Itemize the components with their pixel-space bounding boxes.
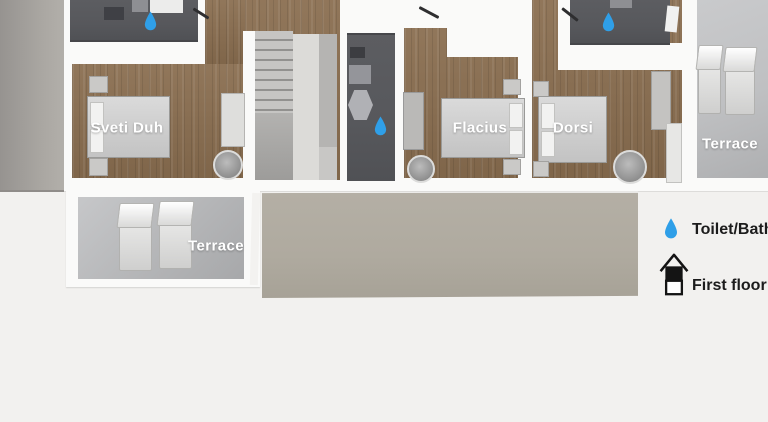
lounger-backrest <box>722 47 757 72</box>
pouf <box>407 155 435 183</box>
room-label-dorsi: Dorsi <box>553 120 593 137</box>
pouf <box>613 150 647 184</box>
stair-bottom-step <box>319 147 337 180</box>
water-drop-icon <box>143 10 158 33</box>
legend-label-toilet-bath: Toilet/Bath <box>692 221 768 239</box>
wardrobe <box>651 71 671 130</box>
pillow <box>509 103 523 128</box>
lounger-backrest <box>116 203 154 228</box>
room-label-sveti-duh: Sveti Duh <box>91 120 164 137</box>
washbasin-fixture <box>349 65 371 84</box>
sun-lounger <box>159 203 192 269</box>
room-label-terrace-lower: Terrace <box>188 238 244 255</box>
nightstand <box>503 159 521 175</box>
staircase <box>255 31 337 180</box>
bathroom-sveti-duh <box>70 0 198 42</box>
room-label-terrace-upper: Terrace <box>702 136 758 153</box>
bathroom-hall <box>347 33 395 181</box>
room-label-flacius: Flacius <box>453 120 508 137</box>
first-floor-house-icon <box>656 251 692 299</box>
nightstand <box>533 161 549 177</box>
lower-roof-slab <box>262 191 638 298</box>
water-drop-icon <box>601 11 616 34</box>
sink-fixture <box>610 0 632 8</box>
sun-lounger <box>119 205 152 271</box>
wall <box>558 43 682 70</box>
stair-side-wall <box>319 34 337 147</box>
left-roof-slab <box>0 0 64 192</box>
legend-label-first-floor: First floor <box>692 277 767 295</box>
nightstand <box>533 81 549 97</box>
bathroom-dorsi <box>570 0 670 45</box>
lounger-backrest <box>695 45 723 70</box>
toilet-fixture <box>104 7 124 20</box>
stair-ramp <box>255 113 293 180</box>
nightstand <box>89 158 108 176</box>
shelf-fixture <box>350 47 365 58</box>
pouf <box>213 150 243 180</box>
closet <box>403 92 424 150</box>
stair-landing <box>293 34 319 180</box>
desk <box>221 93 245 147</box>
nightstand <box>89 76 108 93</box>
nightstand <box>503 79 521 95</box>
wall <box>447 28 518 57</box>
cabinet <box>666 123 682 183</box>
pillow <box>509 130 523 155</box>
sink-fixture <box>348 90 373 120</box>
stair-steps <box>255 31 293 113</box>
floor-plan-canvas: Sveti Duh Flacius Dorsi Terrace Terrace … <box>0 0 768 422</box>
lounger-backrest <box>156 201 194 226</box>
water-drop-icon <box>663 217 679 241</box>
sun-lounger <box>725 49 755 115</box>
water-drop-icon <box>373 115 388 138</box>
sun-lounger <box>698 47 721 114</box>
